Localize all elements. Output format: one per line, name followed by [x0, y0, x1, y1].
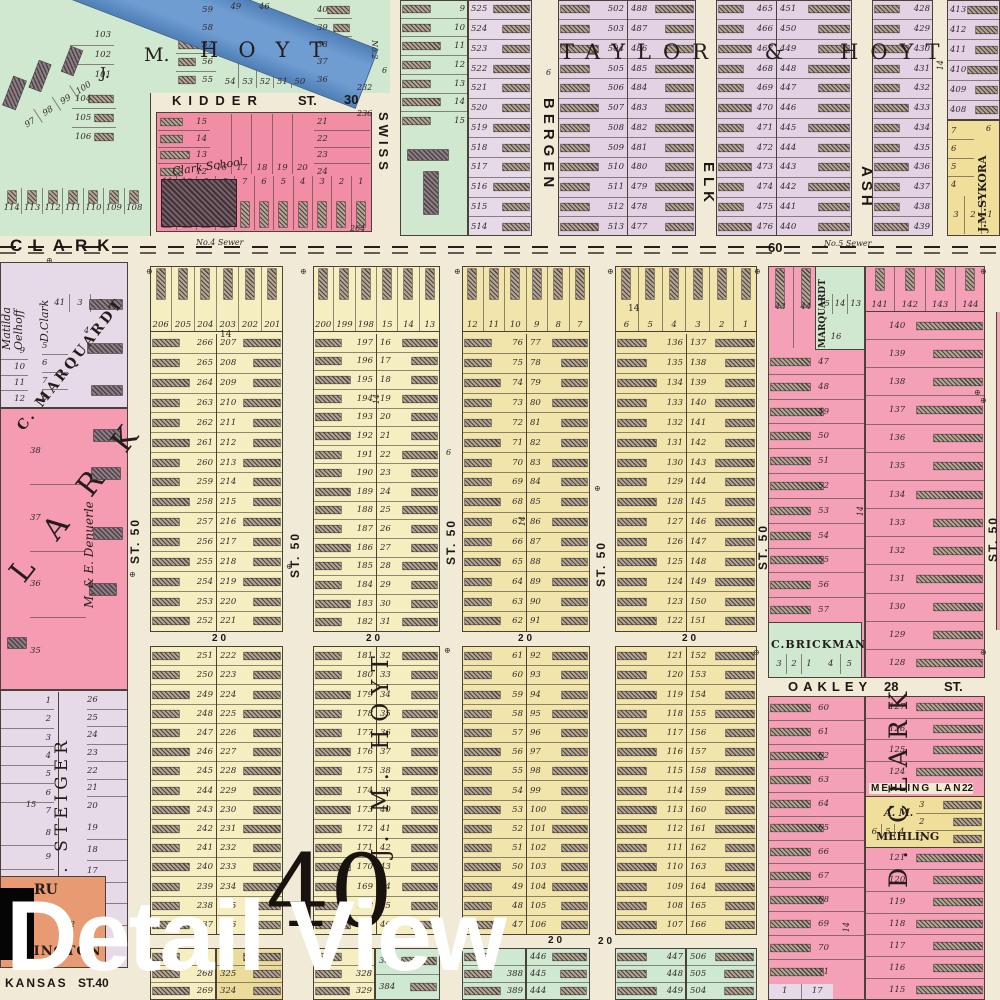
lot: 112 [42, 188, 62, 214]
lot: 24 [377, 482, 440, 501]
lot: 469 [716, 78, 776, 98]
lot: 524 [468, 19, 532, 39]
lot-depth-mark: 14 [220, 330, 231, 340]
lot: 227 [217, 742, 283, 761]
lot: 439 [872, 216, 933, 236]
width-mark: 6 [986, 124, 991, 133]
lot: 54 [222, 62, 238, 88]
lot: 121 [865, 848, 985, 869]
benchmark-icon: ⊕ [980, 267, 987, 276]
lot: 88 [527, 551, 590, 571]
lot: 85 [527, 492, 590, 512]
lot: 176 [313, 742, 376, 761]
street-label-st50-1: ST. 50 [128, 428, 142, 564]
owner-label-dclark-small: D.Clark [38, 262, 51, 342]
lot: 53 [462, 800, 526, 819]
lot: 518 [468, 137, 532, 157]
lot: 449 [615, 982, 686, 999]
lot: 203 [216, 266, 238, 331]
lot: 520 [468, 98, 532, 118]
lot: 479 [628, 177, 696, 197]
lot: 6 [615, 266, 638, 331]
lot: 103 [70, 26, 114, 45]
lot: 93 [527, 665, 590, 684]
lot: 75 [462, 353, 526, 373]
lot: 108 [615, 896, 686, 915]
lot: 132 [865, 536, 985, 564]
lot: 196 [313, 352, 376, 371]
lot: 194 [313, 389, 376, 408]
lot-depth-mark: 14 [372, 394, 381, 404]
lot: 56 [768, 572, 865, 597]
lot: 4 [0, 746, 54, 764]
lot: 107 [615, 915, 686, 934]
lot: 512 [558, 197, 627, 217]
lot: 202 [238, 266, 260, 331]
benchmark-icon: ⊕ [753, 648, 760, 657]
benchmark-icon: ⊕ [46, 256, 53, 265]
lot: 7 [234, 176, 253, 230]
lot: 138 [687, 353, 757, 373]
lot: 105 [72, 108, 116, 127]
lot: 84 [527, 472, 590, 492]
lot: 114 [615, 780, 686, 799]
lot: 80 [527, 393, 590, 413]
lot-group: 114113112111110109108 [2, 188, 144, 214]
lot: 488 [628, 0, 696, 19]
lot: 79 [527, 373, 590, 393]
lot: 1 [0, 692, 54, 709]
lot: 132 [615, 412, 686, 432]
lot: 161 [687, 819, 757, 838]
lot: 116 [615, 742, 686, 761]
lot: 133 [865, 508, 985, 536]
lot: 121 [615, 647, 686, 665]
street-label-st50-4: ST. 50 [594, 362, 608, 587]
lot: 143 [687, 452, 757, 472]
lot-group: 206205204203202201 [150, 266, 283, 332]
street-label-kidder: KIDDER [172, 93, 264, 108]
lot: 128 [615, 492, 686, 512]
lot: 436 [872, 157, 933, 177]
lot: 70 [768, 935, 865, 959]
lot: 466 [716, 19, 776, 39]
lot: 131 [615, 432, 686, 452]
lot: 221 [217, 611, 283, 631]
lot: 162 [687, 838, 757, 857]
lot: 98 [527, 761, 590, 780]
sewer-label-5: No.5 Sewer [824, 239, 871, 248]
lot: 252 [150, 611, 216, 631]
lot: 16 [826, 328, 846, 346]
lot: 134 [615, 373, 686, 393]
lot: 10 [0, 359, 28, 375]
lot: 18 [377, 370, 440, 389]
lot: 15 [158, 114, 210, 130]
building [8, 638, 26, 648]
lot: 199 [333, 266, 354, 331]
lot: 3 [0, 728, 54, 746]
lot: 254 [150, 571, 216, 591]
lot: 11 [0, 375, 28, 391]
lot: 115 [865, 978, 985, 1000]
lot: 69 [462, 472, 526, 492]
lot-group: 121120119118117116115 [865, 848, 985, 1000]
lot: 14 [397, 266, 418, 331]
lot: 158 [687, 761, 757, 780]
lot-group: 465466467468469470471472473474475476 [716, 0, 776, 236]
lot: 127 [615, 512, 686, 532]
lot: 111 [615, 838, 686, 857]
lot: 6 [254, 176, 273, 230]
lot: 264 [150, 373, 216, 393]
lot: 19 [377, 389, 440, 408]
street-label-st50-2: ST. 50 [288, 378, 302, 578]
lot-group: 127126125124 [865, 697, 985, 782]
lot: 178 [313, 704, 376, 723]
lot: 147 [687, 532, 757, 552]
lot-group: 104105106 [72, 90, 116, 146]
lot: 113 [615, 800, 686, 819]
width-mark: 6 [382, 66, 387, 75]
lot: 263 [150, 393, 216, 413]
lot: 228 [217, 761, 283, 780]
lot: 72 [462, 412, 526, 432]
lot: 140 [687, 393, 757, 413]
owner-label-j: J. [100, 64, 110, 82]
sewer-label-4: No.4 Sewer [196, 238, 243, 247]
lot: 66 [768, 840, 865, 864]
lot: 409 [947, 80, 1000, 100]
lot: 517 [468, 157, 532, 177]
lot: 97 [527, 742, 590, 761]
lot: 5 [840, 654, 859, 674]
lot: 26 [87, 692, 128, 709]
lot: 120 [615, 665, 686, 684]
lot: 100 [527, 800, 590, 819]
lot: 91 [527, 611, 590, 631]
lot: 219 [217, 571, 283, 591]
lot: 189 [313, 482, 376, 501]
lot: 78 [527, 353, 590, 373]
lot: 19 [272, 114, 292, 174]
lot: 213 [217, 452, 283, 472]
lot: 446 [527, 949, 589, 965]
owner-label-dclark-big: D. CLARK [884, 548, 913, 888]
lot: 3 [916, 797, 984, 813]
lot: 35 [30, 617, 86, 684]
lot-group: 9101112 [0, 344, 28, 406]
lot: 244 [150, 780, 216, 799]
lot: 465 [716, 0, 776, 19]
lot: 13 [847, 294, 863, 314]
lane-width-20: 20 [682, 633, 699, 644]
street-label-kidder-st: ST. [298, 93, 317, 108]
street-width-60: 60 [768, 240, 782, 255]
lot: 119 [615, 684, 686, 703]
lot: 15 [400, 111, 468, 130]
lot: 141 [687, 412, 757, 432]
lot: 448 [615, 965, 686, 982]
lot: 122 [615, 611, 686, 631]
lot: 14 [158, 130, 210, 147]
lot: 208 [217, 353, 283, 373]
lot: 63 [462, 591, 526, 611]
lot: 70 [462, 452, 526, 472]
lot: 476 [716, 216, 776, 236]
lot: 90 [527, 591, 590, 611]
lot: 89 [527, 571, 590, 591]
lot: 142 [687, 432, 757, 452]
lane-width-20: 20 [548, 935, 565, 946]
lot: 503 [558, 19, 627, 39]
lot: 12 [400, 55, 468, 74]
lot: 3 [685, 266, 709, 331]
lot: 125 [615, 551, 686, 571]
lot: 139 [865, 339, 985, 367]
lot: 502 [558, 0, 627, 19]
lot: 246 [150, 742, 216, 761]
lot-group: 428429430431432433434435436437438439 [872, 0, 933, 236]
lot: 5 [638, 266, 662, 331]
lot: 245 [150, 761, 216, 780]
lot: 21 [87, 779, 128, 797]
lot: 64 [768, 792, 865, 816]
lot: 51 [462, 838, 526, 857]
lot: 83 [527, 452, 590, 472]
lot: 22 [87, 761, 128, 779]
lot: 220 [217, 591, 283, 611]
lot: 19 [87, 818, 128, 839]
lot-group: 7654 [948, 122, 974, 194]
lot: 61 [768, 720, 865, 744]
lot: 179 [313, 684, 376, 703]
lot: 506 [558, 78, 627, 98]
lot: 247 [150, 723, 216, 742]
lot: 8 [0, 822, 54, 845]
lot: 450 [777, 19, 852, 39]
lot: 240 [150, 857, 216, 876]
lot: 40 [314, 2, 352, 18]
lot: 111 [62, 188, 82, 214]
lot: 140 [865, 312, 985, 339]
lot: 64 [462, 571, 526, 591]
lot: 1 [351, 176, 370, 230]
lot: 160 [687, 800, 757, 819]
lot: 192 [313, 426, 376, 445]
lot: 66 [462, 532, 526, 552]
lot-group: 654321 [615, 266, 757, 332]
lot: 103 [527, 857, 590, 876]
lot-group: 525524523522521520519518517516515514 [468, 0, 532, 236]
lot: 255 [150, 551, 216, 571]
lot: 188 [313, 501, 376, 520]
survey-mark-264: 264 [350, 224, 365, 233]
lot: 109 [103, 188, 123, 214]
benchmark-icon: ⊕ [129, 570, 136, 579]
lot: 13 [419, 266, 440, 331]
lot: 3 [312, 176, 331, 230]
lot-group: 200199198151413 [313, 266, 440, 332]
lot: 157 [687, 742, 757, 761]
lot-group: 140139138137136135134133132131130129128 [865, 312, 985, 677]
building [94, 528, 122, 539]
lot: 57 [768, 597, 865, 622]
lot: 7 [569, 266, 591, 331]
lot: 149 [687, 571, 757, 591]
lot: 137 [687, 334, 757, 353]
benchmark-icon: ⊕ [754, 267, 761, 276]
lot: 487 [628, 19, 696, 39]
lot: 87 [527, 532, 590, 552]
lot: 53 [768, 498, 865, 523]
lot: 198 [355, 266, 376, 331]
lot: 130 [615, 452, 686, 472]
lot-group: 16 [826, 328, 846, 346]
lot: 130 [865, 593, 985, 621]
lot: 9 [400, 0, 468, 18]
width-mark: 6 [446, 448, 451, 457]
lot: 106 [527, 915, 590, 934]
lot: 124 [615, 571, 686, 591]
lot: 209 [217, 373, 283, 393]
street-label-oakley-st: ST. [944, 679, 963, 694]
lot: 249 [150, 684, 216, 703]
lot: 136 [865, 424, 985, 452]
lot: 105 [527, 896, 590, 915]
lot: 205 [171, 266, 193, 331]
lot: 173 [313, 800, 376, 819]
lot: 23 [314, 147, 370, 164]
lot: 145 [687, 492, 757, 512]
lot-group: 4748495051525354555657 [768, 350, 865, 622]
lot: 257 [150, 512, 216, 532]
lot: 154 [687, 684, 757, 703]
survey-mark-236: 236 [357, 109, 372, 118]
lot-depth-mark: 14 [842, 922, 851, 932]
lot: 16 [377, 334, 440, 352]
street-label-st-right: ST. 50 [986, 412, 1000, 562]
building [408, 150, 448, 160]
lot: 76 [462, 334, 526, 353]
owner-label-taylor-hoyt: TAYLOR & HOYT [560, 40, 951, 64]
lot: 411 [947, 39, 1000, 59]
lot: 150 [687, 591, 757, 611]
lot: 473 [716, 157, 776, 177]
lot: 18 [251, 114, 271, 174]
lot: 258 [150, 492, 216, 512]
lot: 108 [124, 188, 144, 214]
lot: 63 [768, 768, 865, 792]
lot: 256 [150, 532, 216, 552]
lot: 186 [313, 538, 376, 557]
lot: 222 [217, 647, 283, 665]
lot: 184 [313, 575, 376, 594]
lot: 95 [527, 704, 590, 723]
lot-group: 447448449 [615, 949, 686, 999]
lane-width-20: 20 [518, 633, 535, 644]
lot: 68 [462, 492, 526, 512]
lot-group: 45 [822, 654, 858, 674]
lot: 86 [527, 512, 590, 532]
lot: 408 [947, 100, 1000, 120]
lot: 442 [777, 177, 852, 197]
lot: 51 [768, 448, 865, 473]
lot: 129 [615, 472, 686, 492]
lot: 441 [777, 197, 852, 217]
lot: 124 [865, 761, 985, 783]
lot: 54 [462, 780, 526, 799]
lot-depth-mark: 14 [628, 304, 639, 314]
lot: 67 [768, 863, 865, 887]
lot: 484 [628, 78, 696, 98]
lot: 435 [872, 137, 933, 157]
lot: 71 [768, 959, 865, 983]
lot: 4 [293, 176, 312, 230]
lot: 10 [400, 18, 468, 37]
lot: 428 [872, 0, 933, 19]
lot: 2 [916, 813, 984, 830]
lot: 117 [615, 723, 686, 742]
lot: 116 [865, 956, 985, 978]
street-width-30: 30 [344, 92, 358, 107]
street-label-swiss: SWISS [376, 112, 391, 222]
lot: 218 [217, 551, 283, 571]
lot-group: 9293949596979899100101102103104105106 [526, 647, 590, 934]
lot: 148 [687, 551, 757, 571]
lane-width-20: 20 [212, 633, 229, 644]
lot: 266 [150, 334, 216, 353]
lot: 48 [768, 374, 865, 399]
lot: 175 [313, 761, 376, 780]
lot: 15 [376, 266, 397, 331]
lot: 4 [662, 266, 686, 331]
lot: 77 [527, 334, 590, 353]
lot: 68 [768, 887, 865, 911]
lot: 20 [87, 796, 128, 814]
lot: 514 [468, 216, 532, 236]
lot: 250 [150, 665, 216, 684]
lot: 71 [462, 432, 526, 452]
lot: 410 [947, 60, 1000, 80]
owner-label-oelhoff: Oelhoff [12, 258, 25, 350]
lot: 81 [527, 412, 590, 432]
lot: 1 [769, 984, 801, 999]
lot: 25 [377, 501, 440, 520]
benchmark-icon: ⊕ [444, 646, 451, 655]
lot: 440 [777, 216, 852, 236]
lot: 113 [21, 188, 41, 214]
lot: 106 [72, 127, 116, 146]
lot: 261 [150, 432, 216, 452]
lot: 181 [313, 647, 376, 665]
lot: 204 [194, 266, 216, 331]
lot: 142 [894, 266, 924, 311]
lot: 136 [615, 334, 686, 353]
lot: 110 [83, 188, 103, 214]
benchmark-icon: ⊕ [974, 388, 981, 397]
lot: 50 [462, 857, 526, 876]
lot: 3 [69, 294, 89, 312]
lot: 509 [558, 137, 627, 157]
street-label-bergen: BERGEN [540, 98, 557, 238]
lot: 9 [526, 266, 548, 331]
lot: 472 [716, 137, 776, 157]
lot: 11 [483, 266, 505, 331]
lot: 21 [377, 426, 440, 445]
lot-depth-mark: 15 [26, 800, 36, 809]
lot-group: 9101112131415 [400, 0, 468, 130]
